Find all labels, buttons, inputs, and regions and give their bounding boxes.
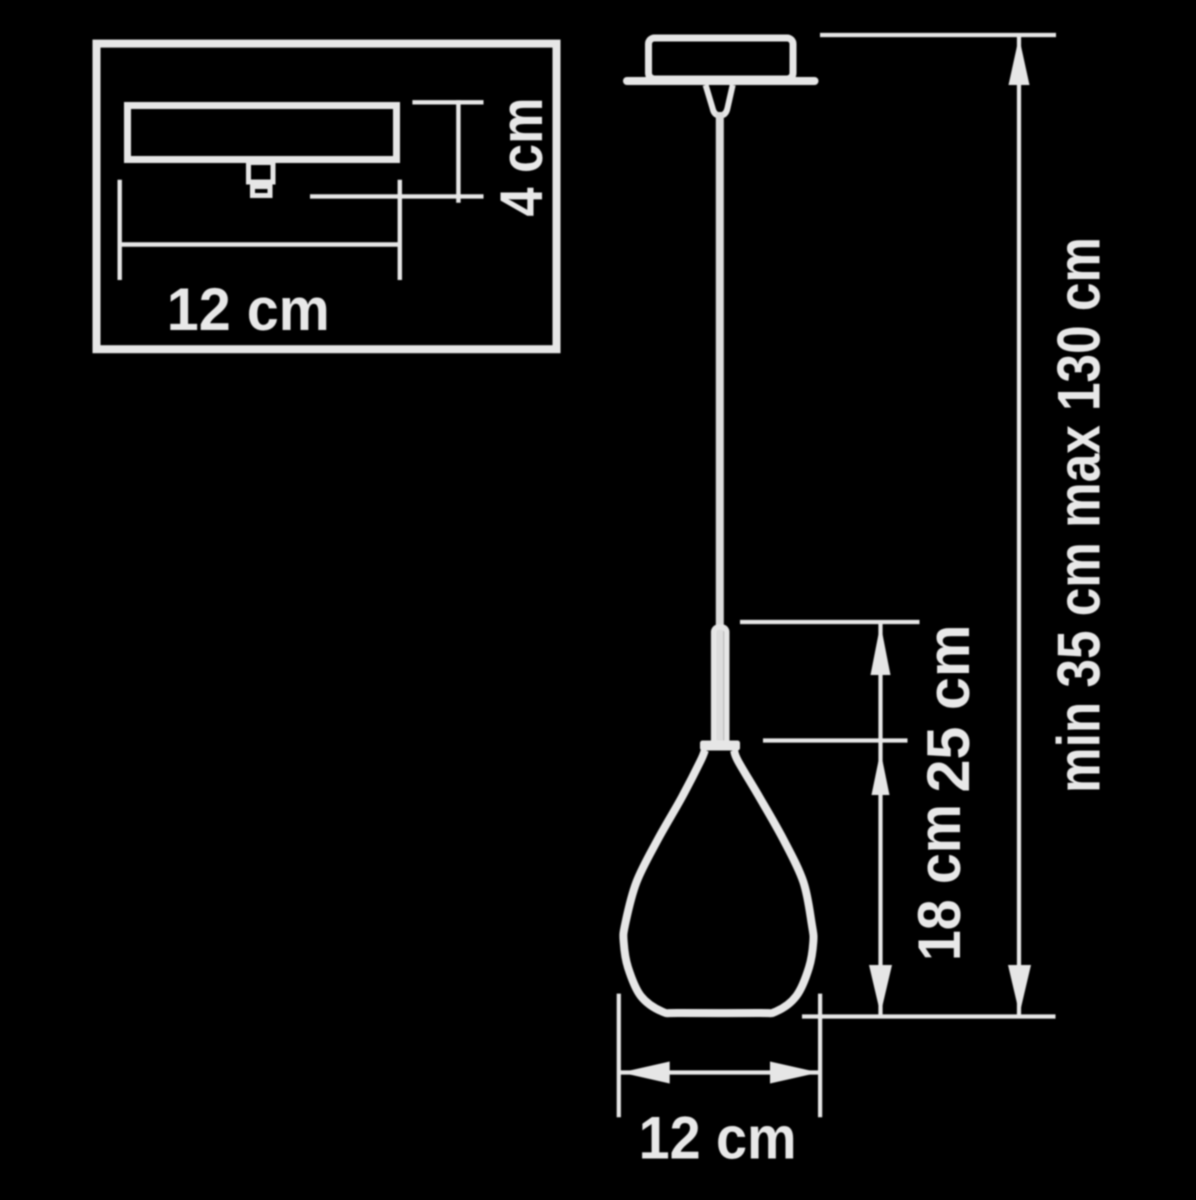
svg-text:12 cm: 12 cm: [639, 1104, 797, 1172]
svg-text:4 cm: 4 cm: [487, 98, 555, 217]
svg-text:18 cm: 18 cm: [905, 804, 973, 961]
svg-text:25 cm: 25 cm: [914, 625, 982, 793]
svg-text:12 cm: 12 cm: [167, 275, 330, 343]
svg-text:min 35 cm max 130 cm: min 35 cm max 130 cm: [1045, 237, 1113, 793]
